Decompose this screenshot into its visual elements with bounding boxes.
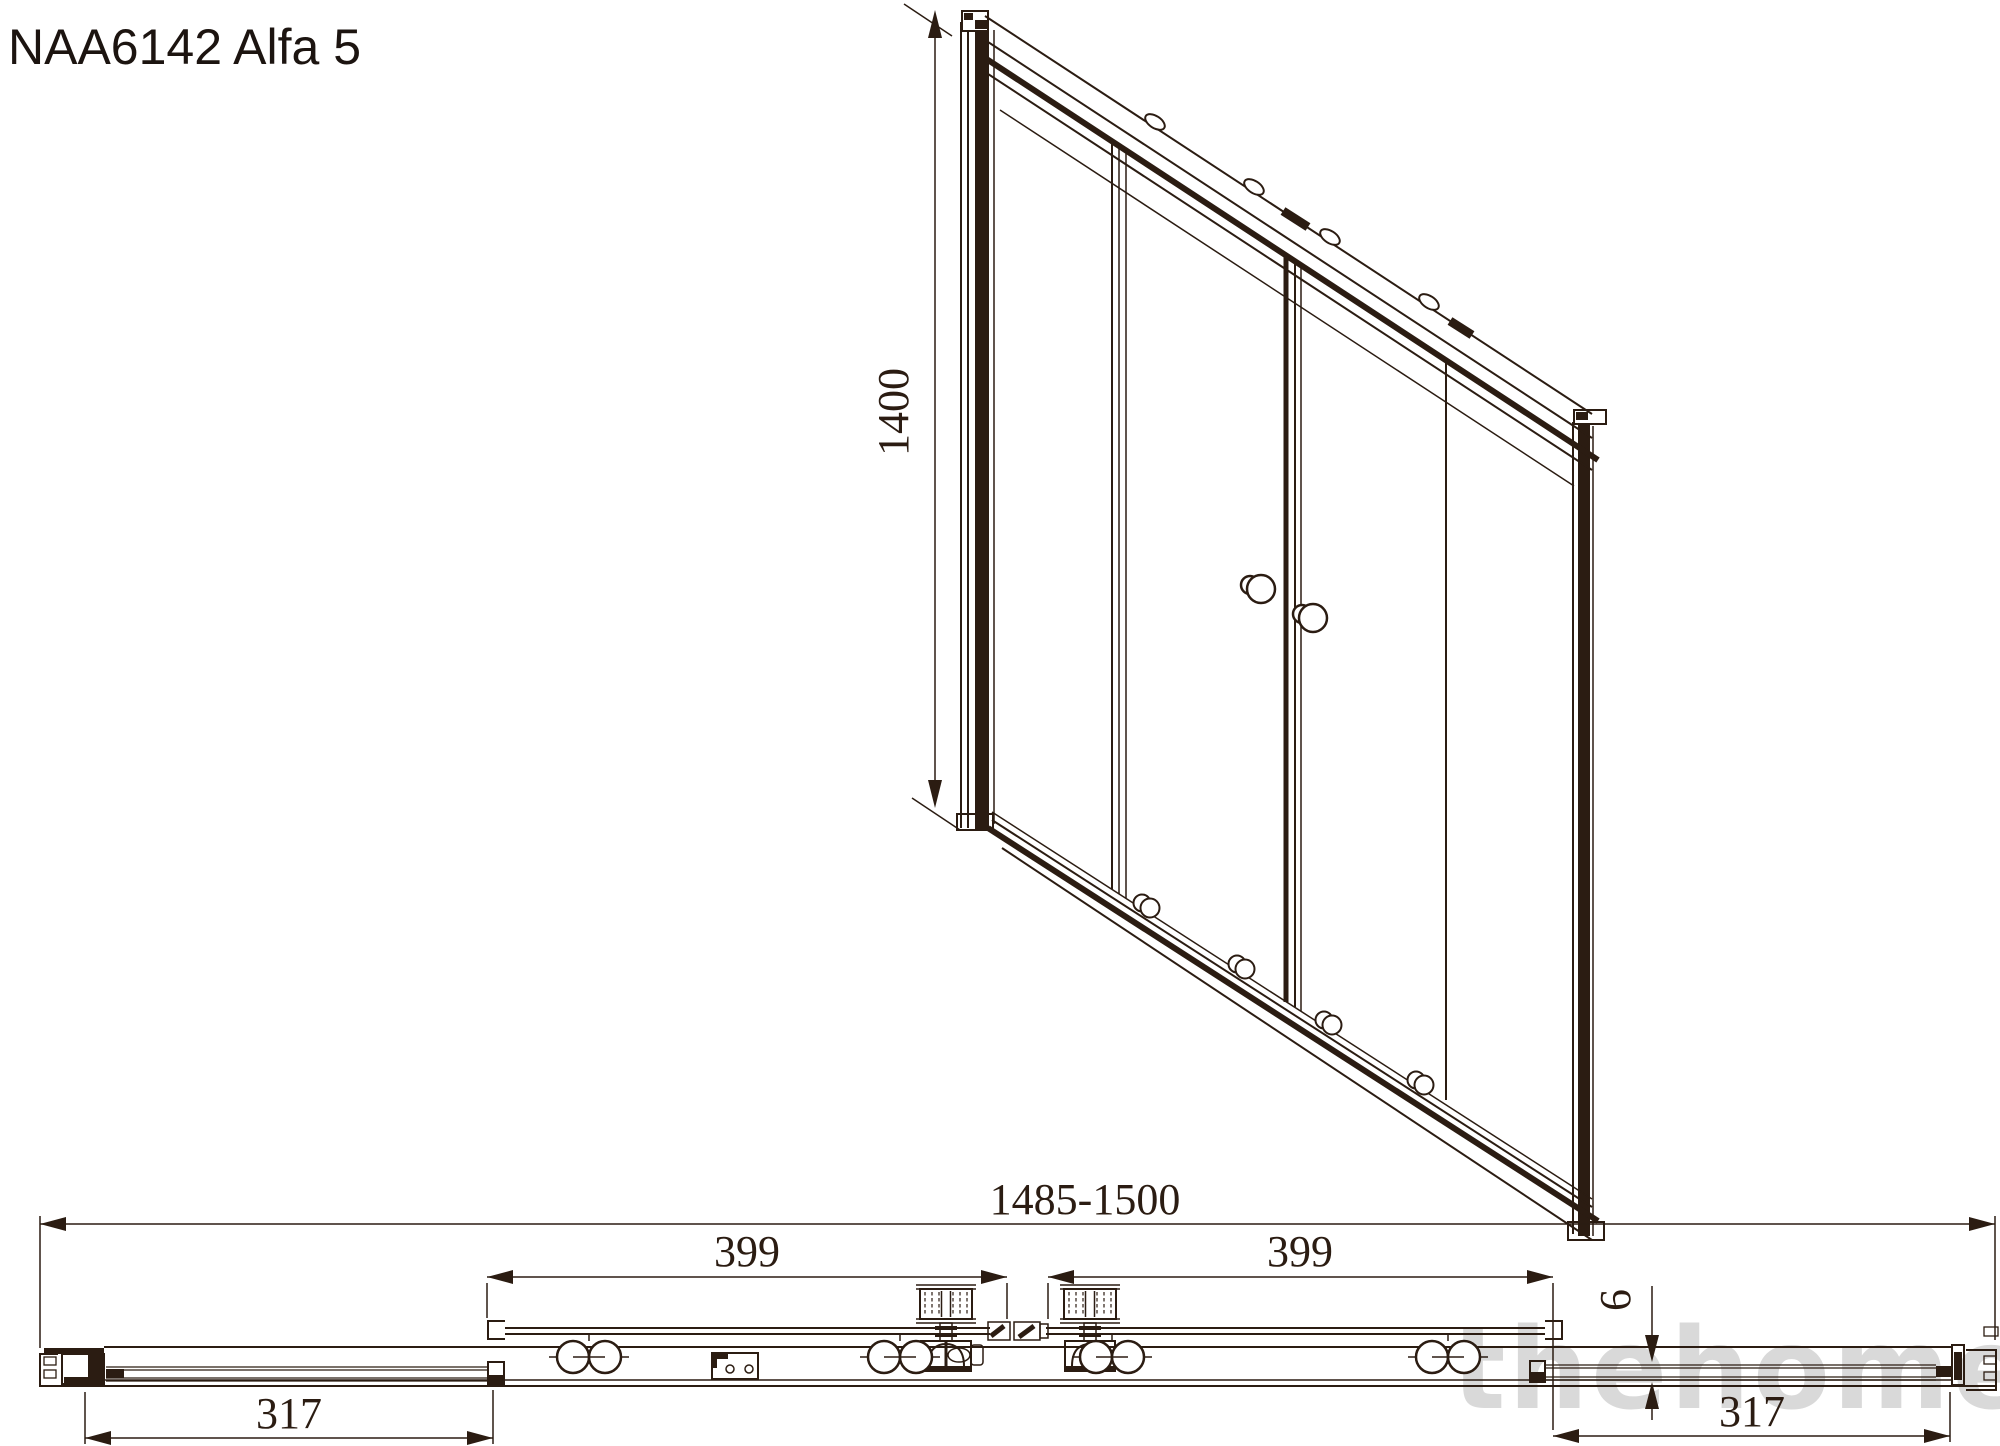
track-clip: [1318, 226, 1343, 248]
dimension-317-left: 317: [85, 1389, 493, 1445]
top-track: [985, 16, 1598, 486]
sliding-glass-left: [488, 1321, 990, 1339]
left-fixed-width-label: 317: [256, 1389, 322, 1438]
center-seal: [988, 1322, 1048, 1340]
track-clip: [1143, 111, 1168, 133]
track-clip: [1242, 176, 1267, 198]
left-panel-width-label: 399: [714, 1227, 780, 1276]
technical-drawing: thehome: [0, 0, 2000, 1446]
left-wall-profile: [40, 1348, 104, 1386]
left-frame-profile: [957, 11, 994, 830]
dimension-1400: 1400: [869, 4, 960, 830]
product-title: NAA6142 Alfa 5: [8, 19, 361, 75]
fixed-glass-left: [106, 1362, 504, 1384]
door-front-view: 1400: [869, 4, 1606, 1240]
floor-guide: [712, 1353, 758, 1379]
right-fixed-width-label: 317: [1719, 1387, 1785, 1436]
height-dimension-label: 1400: [869, 368, 918, 456]
total-width-dimension-label: 1485-1500: [990, 1175, 1181, 1224]
track-clip: [1417, 291, 1442, 313]
glass-thickness-label: 6: [1591, 1289, 1640, 1311]
right-frame-profile: [1568, 410, 1606, 1240]
dimension-399-left: 399: [487, 1227, 1007, 1319]
right-panel-width-label: 399: [1267, 1227, 1333, 1276]
drawing-page: thehome: [0, 0, 2000, 1446]
